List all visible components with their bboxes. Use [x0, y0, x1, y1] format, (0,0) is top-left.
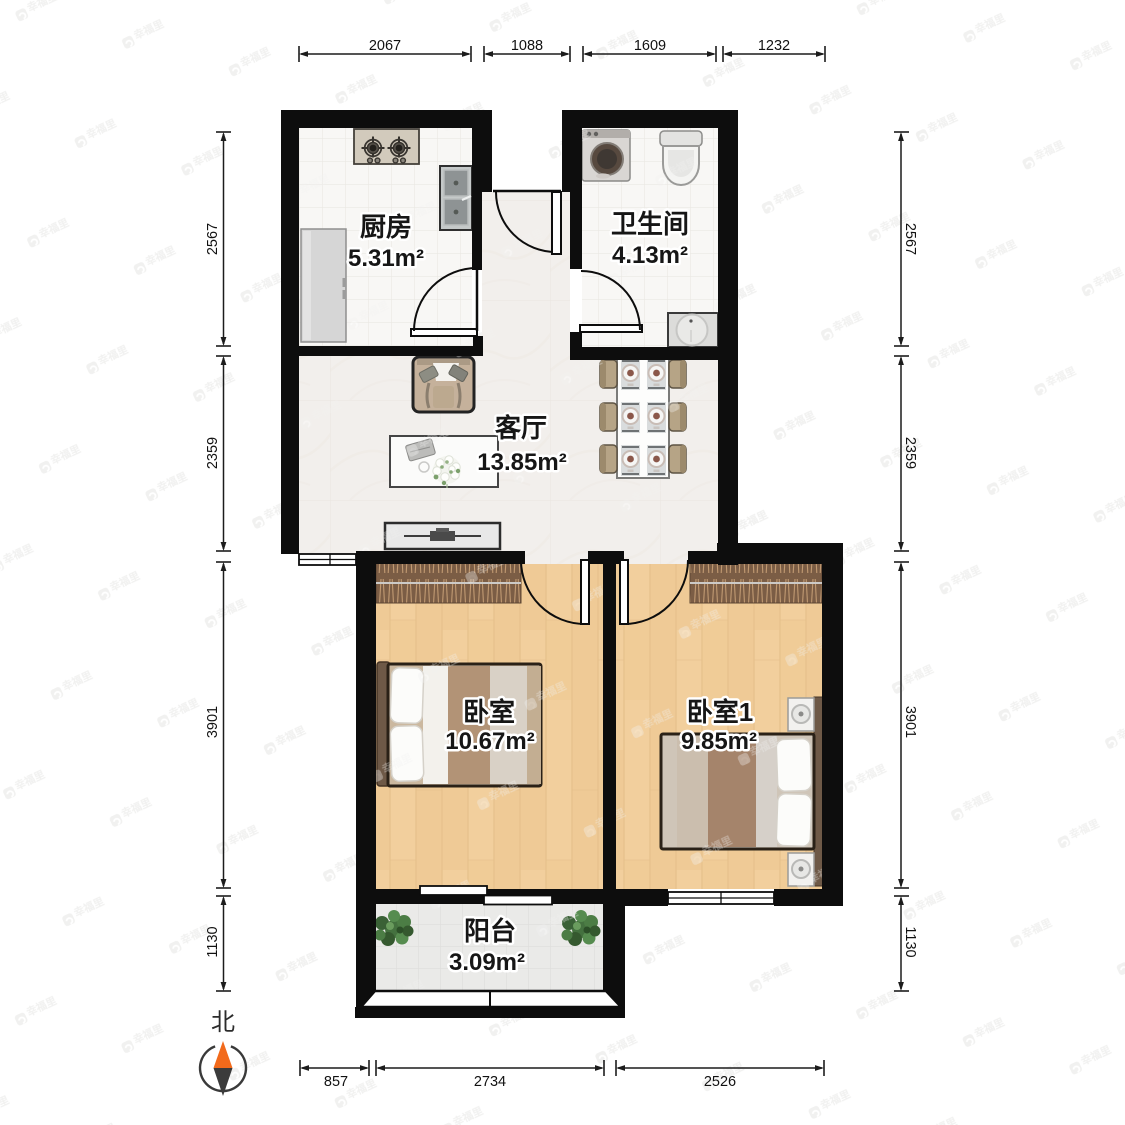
svg-text:13.85m²: 13.85m² — [477, 449, 566, 476]
svg-text:2567: 2567 — [205, 223, 221, 255]
svg-text:客厅: 客厅 — [495, 413, 547, 443]
svg-text:北: 北 — [211, 1009, 235, 1036]
svg-text:2359: 2359 — [902, 437, 918, 469]
svg-text:1609: 1609 — [634, 38, 666, 54]
svg-text:卧室1: 卧室1 — [687, 697, 753, 727]
svg-text:4.13m²: 4.13m² — [612, 242, 688, 269]
svg-text:2067: 2067 — [369, 38, 401, 54]
svg-text:9.85m²: 9.85m² — [681, 728, 757, 755]
svg-text:卫生间: 卫生间 — [611, 209, 689, 239]
svg-text:857: 857 — [324, 1074, 348, 1090]
svg-text:1232: 1232 — [758, 38, 790, 54]
svg-text:卧室: 卧室 — [463, 697, 515, 727]
svg-text:1088: 1088 — [511, 38, 543, 54]
svg-text:厨房: 厨房 — [360, 212, 412, 242]
svg-text:10.67m²: 10.67m² — [445, 728, 534, 755]
svg-text:2734: 2734 — [474, 1074, 506, 1090]
svg-text:5.31m²: 5.31m² — [348, 245, 424, 272]
svg-text:1130: 1130 — [205, 926, 221, 957]
svg-text:3901: 3901 — [205, 706, 221, 738]
svg-text:2526: 2526 — [704, 1074, 736, 1090]
svg-text:阳台: 阳台 — [464, 916, 516, 946]
svg-text:3.09m²: 3.09m² — [449, 949, 525, 976]
svg-text:2359: 2359 — [205, 437, 221, 469]
svg-text:3901: 3901 — [902, 706, 918, 738]
svg-text:2567: 2567 — [902, 223, 918, 255]
svg-text:1130: 1130 — [902, 926, 918, 957]
